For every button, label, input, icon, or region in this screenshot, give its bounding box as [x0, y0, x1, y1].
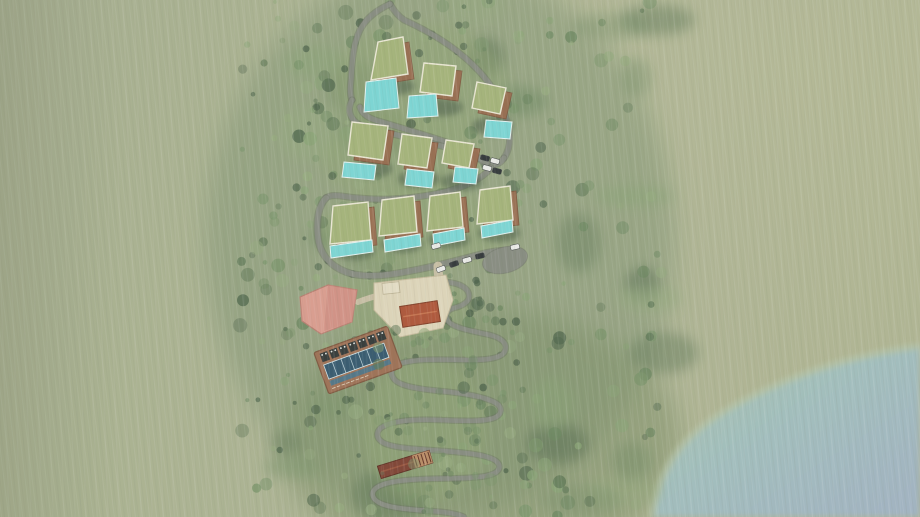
masterplan-rendering: [0, 0, 920, 517]
haze-overlay: [0, 0, 920, 517]
site-plan-canvas: [0, 0, 920, 517]
